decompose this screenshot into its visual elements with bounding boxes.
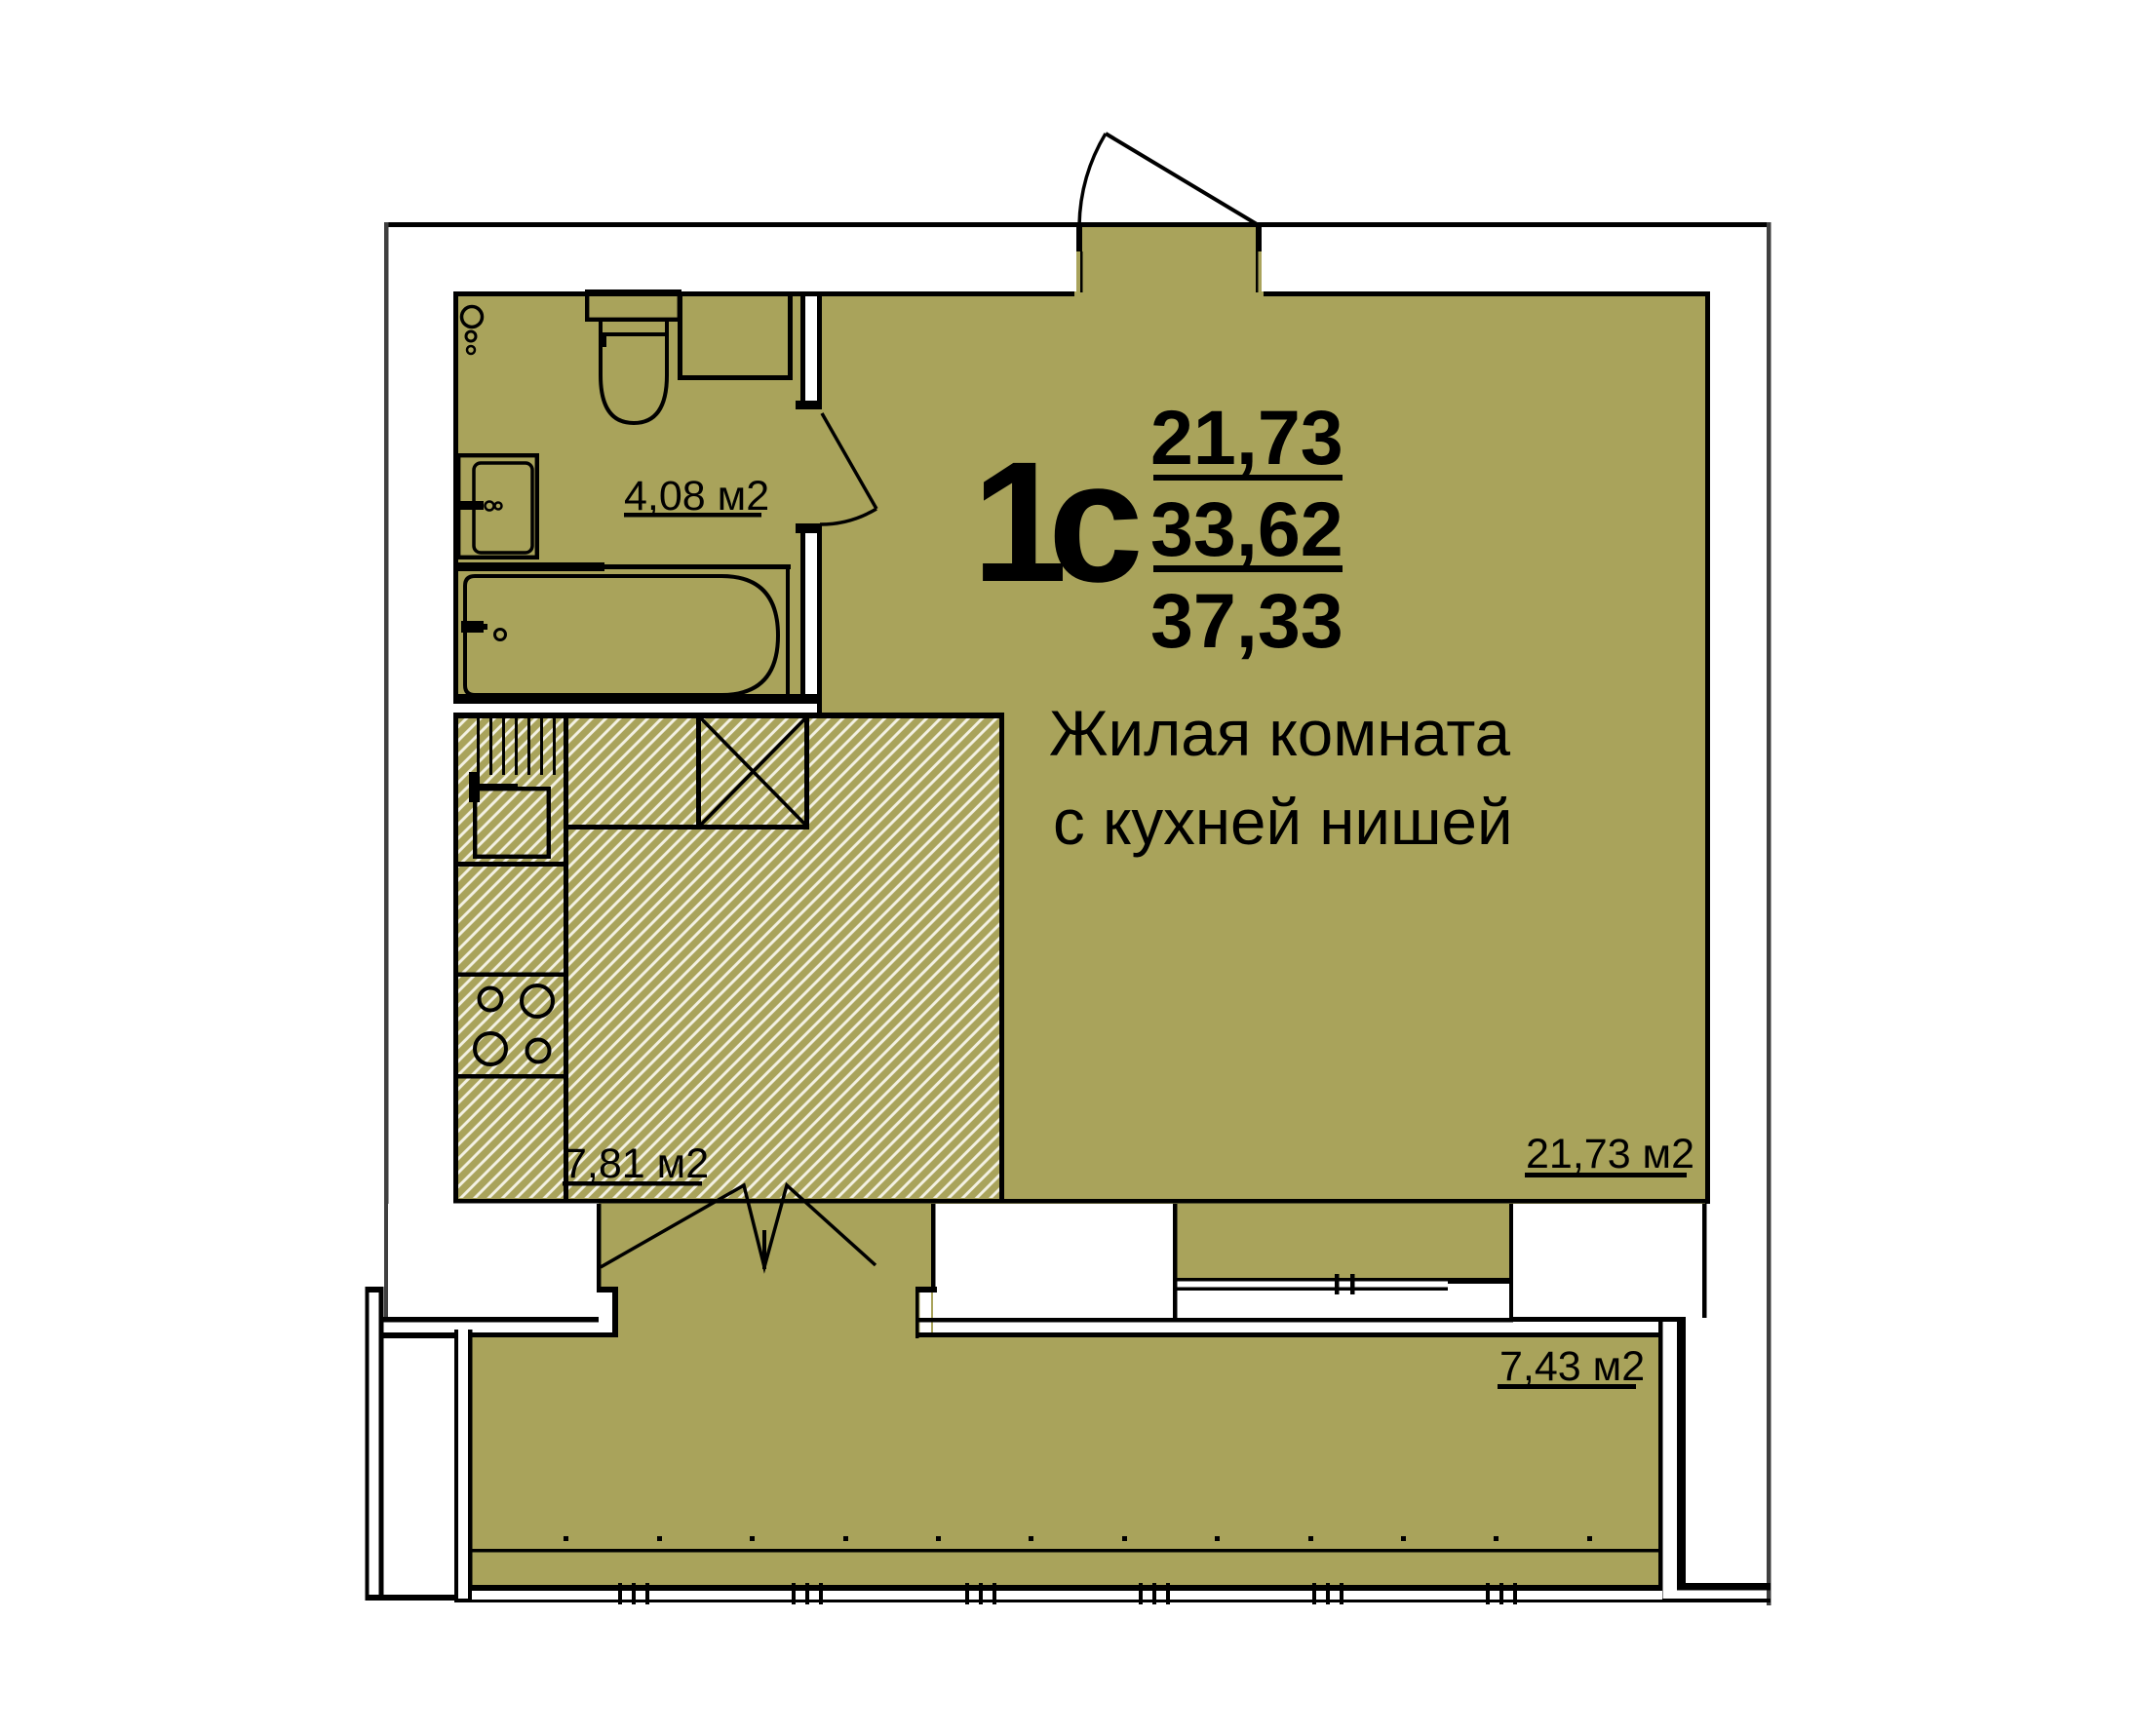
svg-text:21,73 м2: 21,73 м2 — [1526, 1131, 1694, 1177]
svg-text:7,43 м2: 7,43 м2 — [1499, 1343, 1645, 1390]
svg-text:21,73: 21,73 — [1150, 394, 1343, 481]
svg-text:33,62: 33,62 — [1150, 485, 1343, 572]
svg-text:37,33: 37,33 — [1150, 577, 1343, 664]
svg-text:1с: 1с — [972, 427, 1139, 618]
svg-text:4,08 м2: 4,08 м2 — [624, 473, 769, 520]
svg-text:7,81 м2: 7,81 м2 — [564, 1140, 709, 1187]
svg-text:с кухней нишей: с кухней нишей — [1053, 787, 1513, 858]
svg-text:Жилая комната: Жилая комната — [1049, 698, 1511, 769]
